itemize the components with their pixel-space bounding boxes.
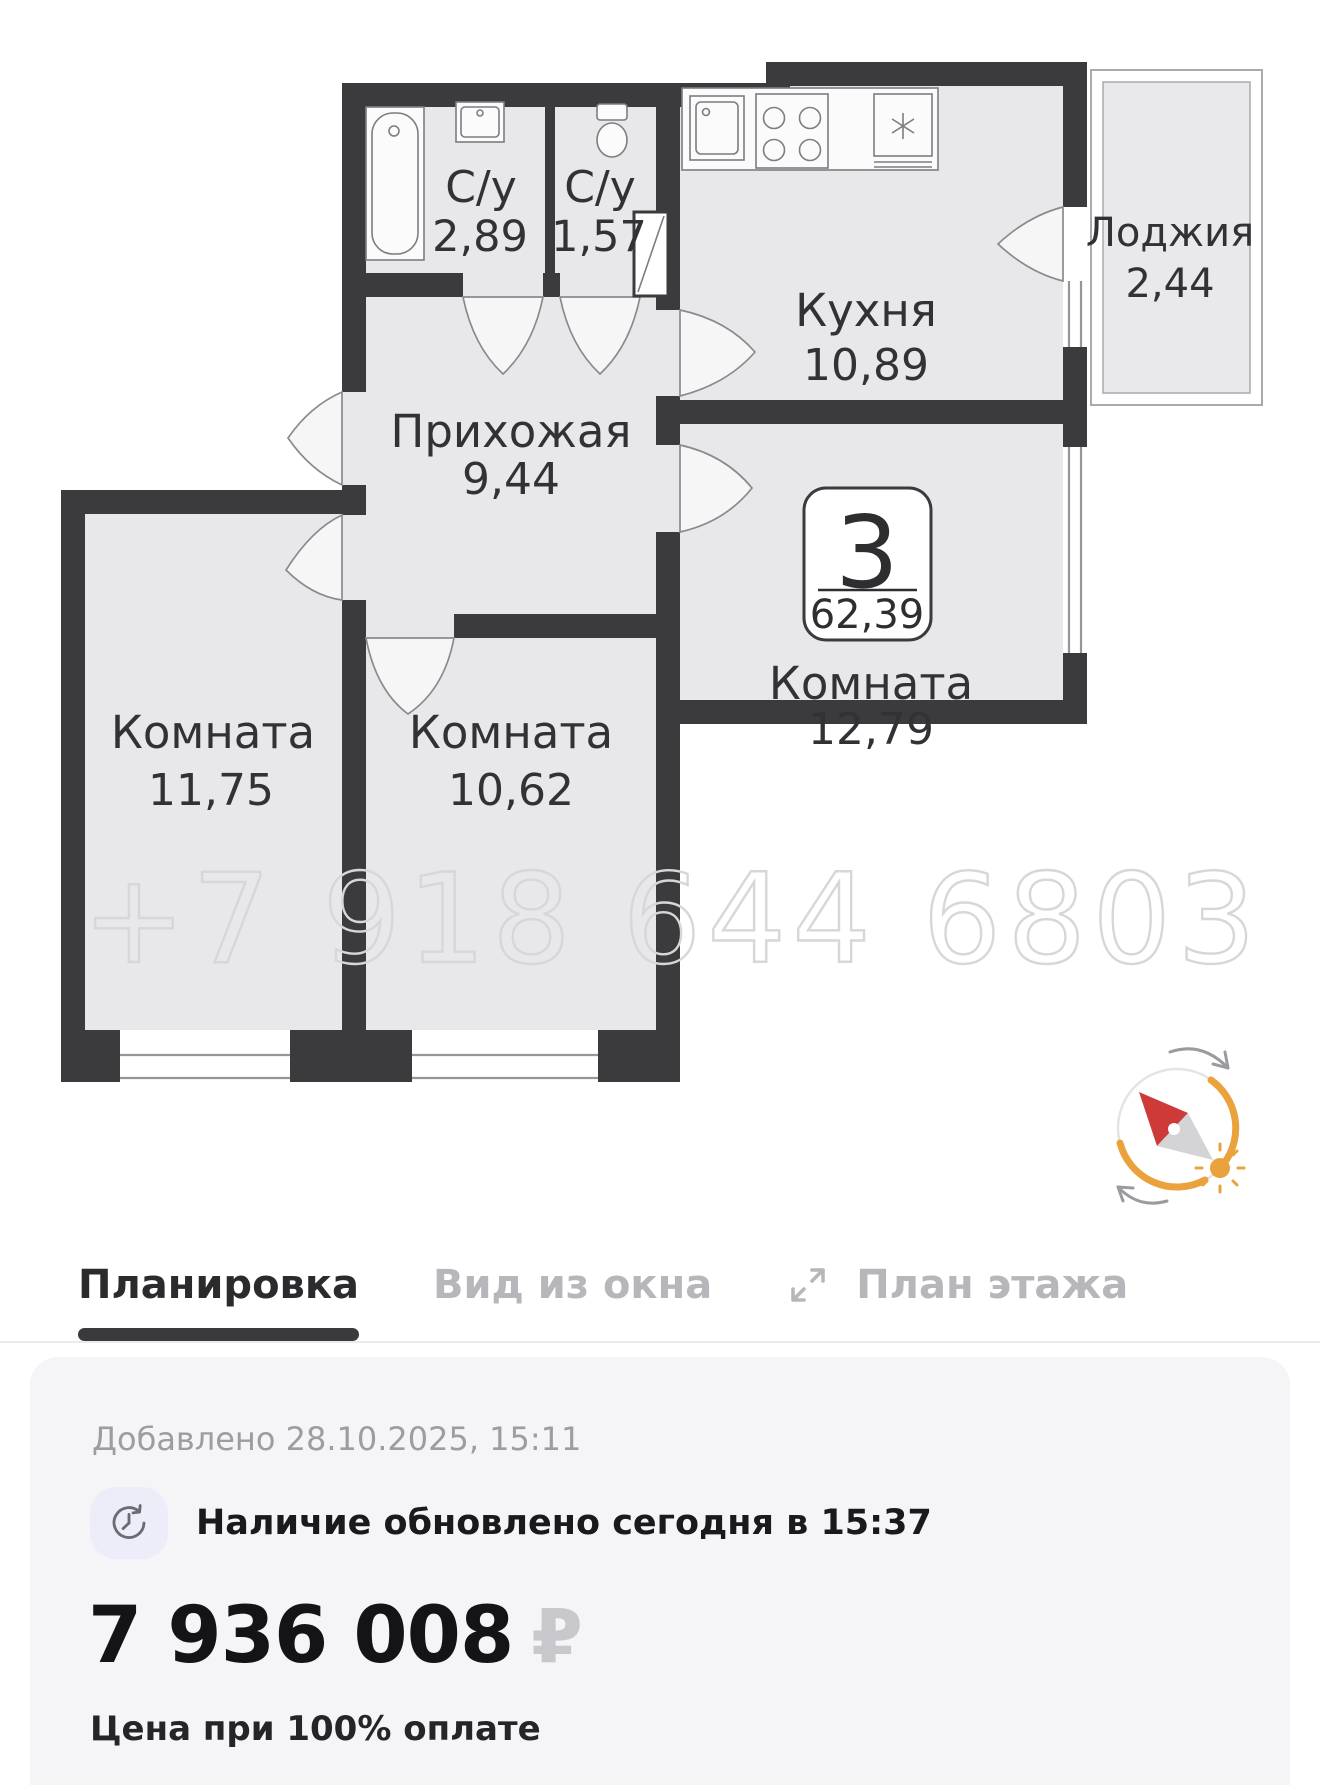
watermark-phone: +7 918 644 6803 [82, 848, 1262, 992]
gallery-tabs: Планировка Вид из окна План этажа [78, 1262, 1128, 1308]
listing-page: С/у 2,89 С/у 1,57 Кухня 10,89 Лоджия 2,4… [0, 0, 1320, 1785]
tabbar-divider [0, 1341, 1320, 1343]
kitchen-sink-icon [690, 96, 744, 160]
room-area: 2,44 [1125, 261, 1214, 307]
room-label: Кухня [795, 284, 937, 337]
room-area: 10,89 [803, 340, 929, 391]
price-row: 7 936 008 ₽ [88, 1591, 583, 1681]
compass-needle [1139, 1092, 1213, 1160]
tab-floorplan-label: Планировка [78, 1262, 359, 1308]
price-value: 7 936 008 [88, 1591, 513, 1681]
room-area: 2,89 [432, 212, 528, 262]
tab-window-view-label: Вид из окна [433, 1262, 712, 1308]
room-label: Прихожая [391, 405, 632, 458]
tab-floorplan[interactable]: Планировка [78, 1262, 359, 1308]
room-label: Лоджия [1086, 210, 1254, 256]
clock-refresh-icon [109, 1503, 149, 1543]
bathtub-icon [366, 107, 424, 260]
availability-badge [90, 1487, 168, 1559]
room-label: Комната [409, 706, 613, 759]
price-note: Цена при 100% оплате [90, 1709, 541, 1749]
availability-text: Наличие обновлено сегодня в 15:37 [196, 1503, 932, 1543]
sink-icon [456, 102, 504, 142]
toilet-icon [597, 104, 627, 157]
room-area: 11,75 [148, 765, 274, 816]
ruble-sign: ₽ [531, 1594, 583, 1680]
expand-arrows-icon [786, 1263, 830, 1307]
kitchen-appliances [682, 88, 938, 170]
room-area: 1,57 [551, 212, 647, 262]
room-label: Комната [111, 706, 315, 759]
room-label: С/у [564, 162, 636, 213]
room-area: 12,79 [808, 704, 934, 755]
fridge-icon [874, 94, 932, 167]
floor-plan: С/у 2,89 С/у 1,57 Кухня 10,89 Лоджия 2,4… [0, 0, 1320, 1240]
badge-total-area: 62,39 [810, 592, 925, 638]
stove-icon [756, 94, 828, 168]
room-label: Комната [769, 657, 973, 710]
tab-floor-scheme-label: План этажа [856, 1262, 1128, 1308]
added-date: Добавлено 28.10.2025, 15:11 [92, 1420, 581, 1458]
apartment-badge: 3 62,39 [804, 488, 931, 640]
tab-window-view[interactable]: Вид из окна [433, 1262, 712, 1308]
room-area: 9,44 [462, 454, 560, 505]
listing-info-card: Добавлено 28.10.2025, 15:11 Наличие обно… [30, 1357, 1290, 1785]
room-label: С/у [445, 162, 517, 213]
compass-sun-icon[interactable] [1118, 1049, 1244, 1203]
tab-floor-scheme[interactable]: План этажа [786, 1262, 1128, 1308]
room-area: 10,62 [448, 765, 574, 816]
